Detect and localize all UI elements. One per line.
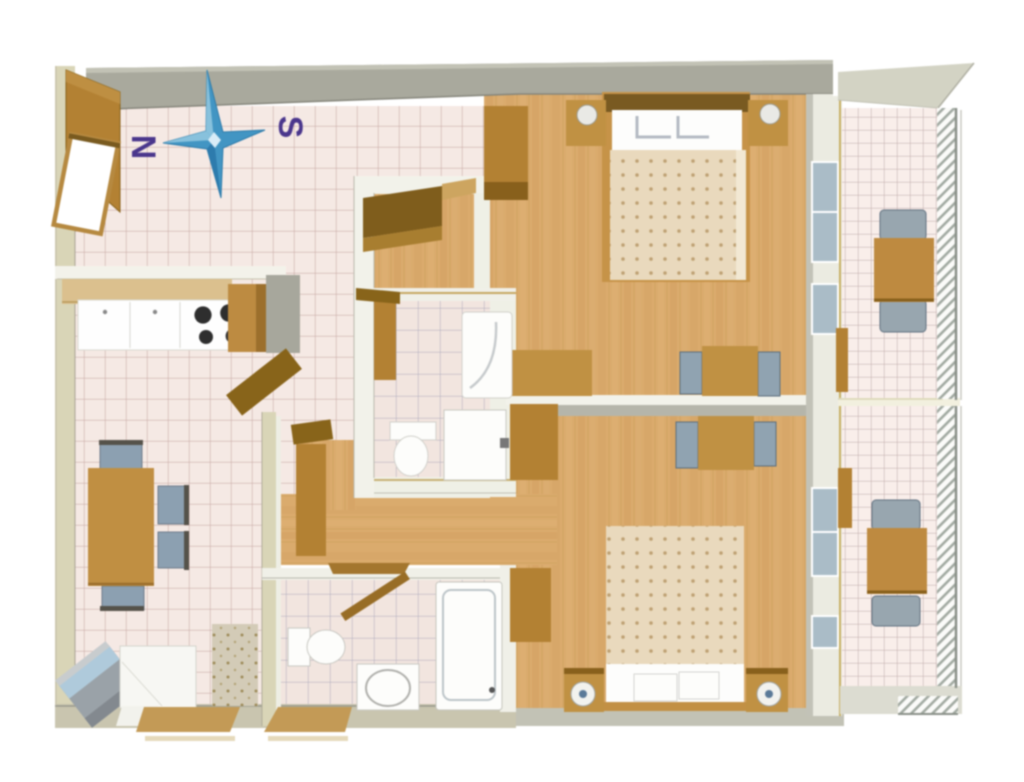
svg-text:N: N <box>124 135 162 160</box>
svg-text:S: S <box>271 116 309 139</box>
